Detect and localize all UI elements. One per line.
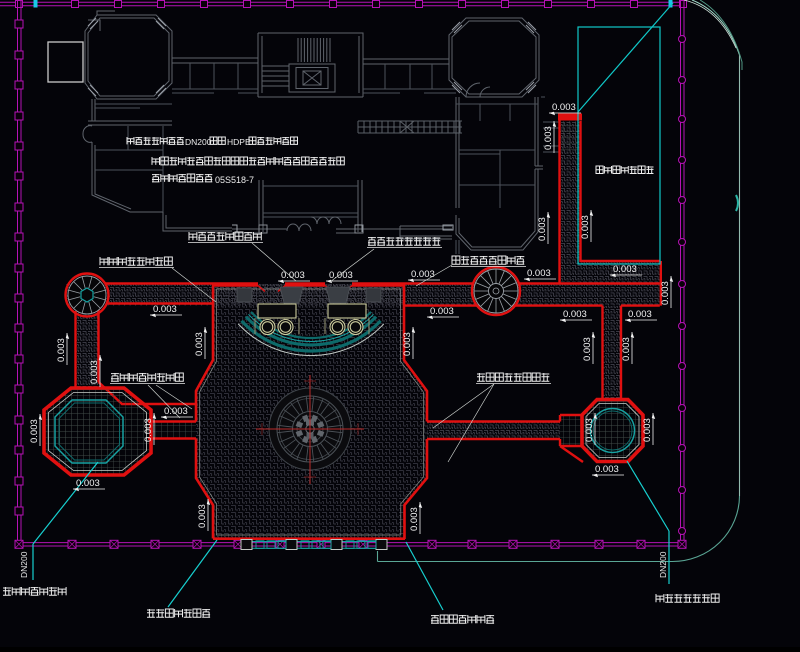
svg-text:0.003: 0.003 bbox=[76, 478, 100, 489]
svg-text:0.003: 0.003 bbox=[642, 418, 653, 442]
svg-text:0.003: 0.003 bbox=[595, 464, 619, 475]
svg-text:HDPE: HDPE bbox=[227, 137, 251, 147]
svg-text:0.003: 0.003 bbox=[613, 264, 637, 275]
svg-text:0.003: 0.003 bbox=[582, 337, 593, 361]
svg-text:0.003: 0.003 bbox=[194, 332, 205, 356]
svg-text:0.003: 0.003 bbox=[563, 309, 587, 320]
svg-text:0.003: 0.003 bbox=[29, 419, 40, 443]
svg-text:0.003: 0.003 bbox=[430, 306, 454, 317]
svg-text:0.003: 0.003 bbox=[580, 215, 591, 239]
svg-text:0.003: 0.003 bbox=[537, 217, 548, 241]
svg-text:0.003: 0.003 bbox=[621, 337, 632, 361]
svg-text:0.003: 0.003 bbox=[197, 504, 208, 528]
svg-text:0.003: 0.003 bbox=[153, 304, 177, 315]
svg-text:0.003: 0.003 bbox=[329, 270, 353, 281]
svg-text:0.003: 0.003 bbox=[411, 269, 435, 280]
svg-text:0.003: 0.003 bbox=[164, 406, 188, 417]
svg-text:0.003: 0.003 bbox=[89, 360, 100, 384]
svg-text:DN200: DN200 bbox=[185, 137, 212, 147]
svg-text:0.003: 0.003 bbox=[552, 102, 576, 113]
svg-text:DN200: DN200 bbox=[658, 551, 668, 578]
svg-text:05S518-7: 05S518-7 bbox=[215, 175, 254, 185]
svg-text:DN200: DN200 bbox=[19, 551, 29, 578]
svg-text:0.003: 0.003 bbox=[660, 281, 671, 305]
svg-text:0.003: 0.003 bbox=[281, 270, 305, 281]
svg-text:0.003: 0.003 bbox=[628, 309, 652, 320]
svg-text:0.003: 0.003 bbox=[527, 268, 551, 279]
svg-text:0.003: 0.003 bbox=[402, 332, 413, 356]
svg-text:0.003: 0.003 bbox=[56, 338, 67, 362]
svg-text:0.003: 0.003 bbox=[584, 418, 595, 442]
svg-text:0.003: 0.003 bbox=[543, 126, 554, 150]
svg-text:0.003: 0.003 bbox=[143, 418, 154, 442]
svg-text:0.003: 0.003 bbox=[409, 507, 420, 531]
